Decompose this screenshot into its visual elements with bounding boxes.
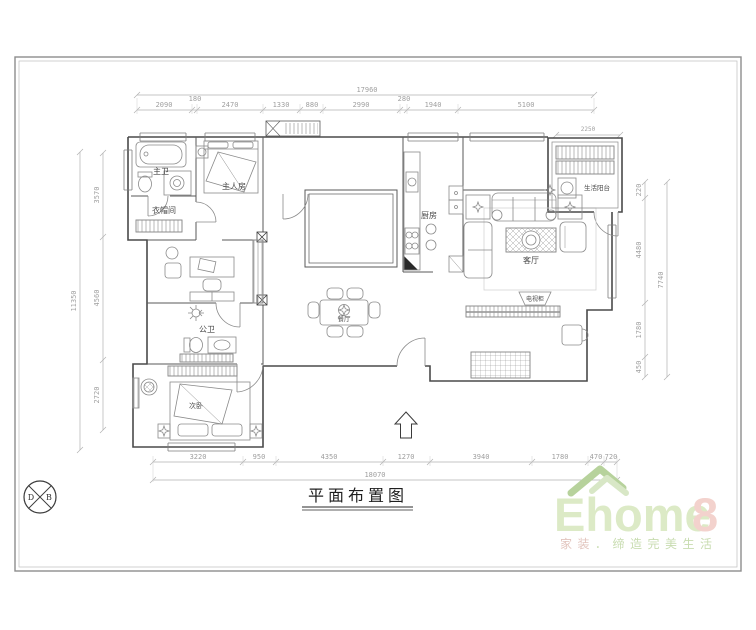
dimension-balcony: 2250 [553, 126, 623, 138]
room-label-cloakroom: 衣帽间 [152, 205, 176, 215]
dimension-chain-top: 17960 2090 180 2470 1330 880 2990 280 19… [134, 86, 597, 114]
dim-top-2: 2470 [222, 101, 239, 109]
dimension-chain-bottom: 3220 950 4350 1270 3940 1780 470 720 180… [150, 453, 620, 483]
dim-top-7: 1940 [425, 101, 442, 109]
room-label-second-bedroom: 次卧 [189, 401, 203, 410]
dining-set [308, 288, 380, 337]
dim-bottom-3: 1270 [398, 453, 415, 461]
logo-brand-suffix: 8 [692, 488, 718, 541]
tv-wall [466, 292, 560, 317]
logo-brand-text: Ehome [554, 488, 711, 541]
structural-columns [257, 232, 418, 305]
dim-bottom-2: 4350 [321, 453, 338, 461]
entry-hall-furniture [471, 325, 588, 378]
dim-left-2: 2720 [93, 387, 101, 404]
dim-right-2: 1780 [635, 322, 643, 339]
dim-right-0: 220 [635, 184, 643, 197]
dimension-chain-right: 220 4480 1780 450 7740 [635, 179, 670, 380]
dim-left-0: 3570 [93, 187, 101, 204]
dim-top-3: 1330 [273, 101, 290, 109]
dim-bottom-total: 18070 [364, 471, 385, 479]
brand-logo: Ehome 8 家装．缔造完美生活 [554, 469, 718, 551]
logo-tagline-left: 家装 [560, 536, 595, 551]
room-label-kitchen: 厨房 [421, 210, 437, 220]
living-room-furniture [464, 193, 596, 290]
dim-top-total: 17960 [356, 86, 377, 94]
study-furniture [165, 240, 263, 303]
dim-top-8: 5100 [518, 101, 535, 109]
dim-top-0: 2090 [156, 101, 173, 109]
dim-right-1: 4480 [635, 242, 643, 259]
dim-top-4: 880 [306, 101, 319, 109]
corner-stamp: D B [24, 481, 56, 513]
dim-left-1: 4560 [93, 290, 101, 307]
floor-plan-drawing: 17960 2090 180 2470 1330 880 2990 280 19… [0, 0, 756, 630]
floor-plan-sheet: 17960 2090 180 2470 1330 880 2990 280 19… [0, 0, 756, 630]
stamp-letter-d: D [28, 493, 34, 502]
dim-bottom-5: 1780 [552, 453, 569, 461]
room-label-tv-cabinet: 电视柜 [526, 295, 544, 303]
logo-tagline: 家装．缔造完美生活 [560, 536, 718, 551]
dim-right-3: 450 [635, 361, 643, 374]
dim-top-5: 2990 [353, 101, 370, 109]
drawing-title: 平面布置图 [302, 486, 413, 510]
logo-tagline-right: ．缔造完美生活 [595, 536, 718, 551]
stamp-letter-b: B [46, 493, 52, 502]
dim-top-6: 280 [398, 95, 411, 103]
dim-bottom-0: 3220 [190, 453, 207, 461]
entry-arrow-icon [395, 412, 417, 438]
dim-bottom-1: 950 [253, 453, 266, 461]
dim-bottom-4: 3940 [473, 453, 490, 461]
dim-bottom-7: 720 [605, 453, 618, 461]
interior-walls [131, 121, 560, 366]
room-label-master-bedroom: 主人房 [222, 181, 246, 191]
dim-bottom-6: 470 [590, 453, 603, 461]
room-label-master-bath: 主卫 [153, 166, 169, 176]
room-label-dining: 餐厅 [338, 314, 352, 323]
room-label-living: 客厅 [523, 255, 539, 265]
dimension-chain-left: 11350 3570 4560 2720 [70, 149, 106, 453]
room-label-public-bath: 公卫 [199, 325, 215, 334]
room-label-balcony: 生活阳台 [584, 183, 610, 192]
dim-top-1: 180 [189, 95, 202, 103]
dim-balcony: 2250 [581, 126, 596, 133]
drawing-title-text: 平面布置图 [308, 486, 408, 505]
cloakroom-wardrobe [136, 220, 182, 232]
dim-left-total: 11350 [70, 290, 78, 311]
dim-right-total: 7740 [657, 272, 665, 289]
